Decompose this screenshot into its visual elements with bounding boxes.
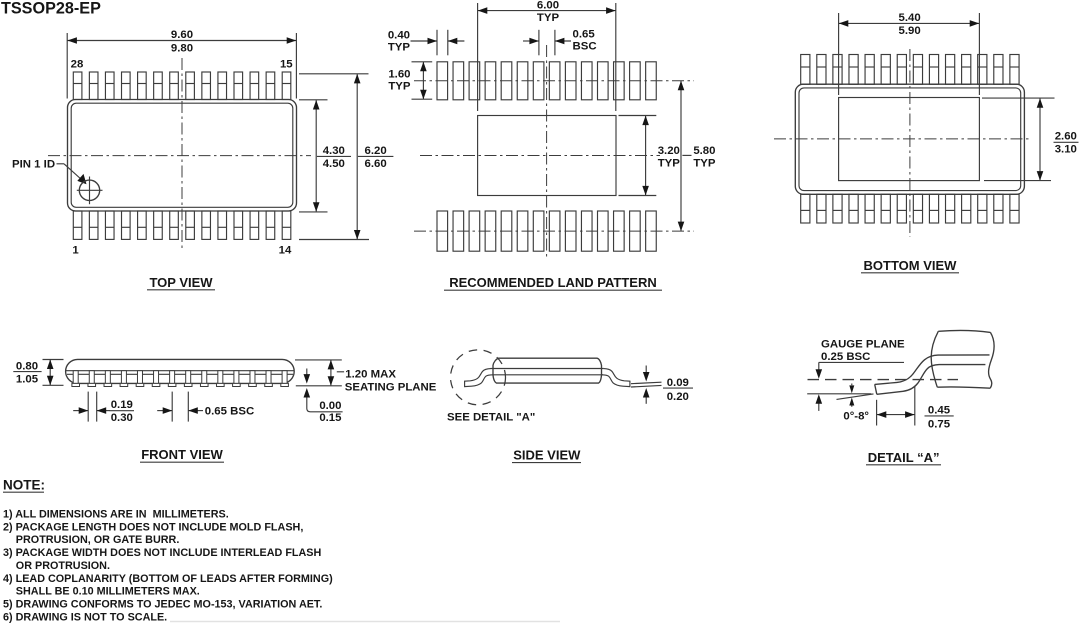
svg-text:0°-8°: 0°-8° xyxy=(843,411,869,423)
svg-text:0.00: 0.00 xyxy=(319,400,341,412)
svg-text:TYP: TYP xyxy=(388,81,411,93)
svg-text:6.60: 6.60 xyxy=(365,158,387,170)
svg-text:NOTE:: NOTE: xyxy=(3,477,45,492)
svg-text:0.40: 0.40 xyxy=(388,30,410,42)
svg-text:1.60: 1.60 xyxy=(388,69,410,81)
svg-text:0.20: 0.20 xyxy=(667,391,689,403)
svg-text:2) PACKAGE LENGTH DOES NOT INC: 2) PACKAGE LENGTH DOES NOT INCLUDE MOLD … xyxy=(3,521,303,533)
svg-text:SEE DETAIL "A": SEE DETAIL "A" xyxy=(447,412,535,424)
svg-text:4) LEAD COPLANARITY (BOTTOM OF: 4) LEAD COPLANARITY (BOTTOM OF LEADS AFT… xyxy=(3,573,333,585)
svg-text:0.09: 0.09 xyxy=(667,377,689,389)
svg-text:5.40: 5.40 xyxy=(899,12,921,24)
svg-text:9.80: 9.80 xyxy=(171,43,193,55)
svg-text:OR PROTRUSION.: OR PROTRUSION. xyxy=(16,560,110,572)
svg-text:BSC: BSC xyxy=(573,41,597,53)
svg-text:0.65: 0.65 xyxy=(573,29,596,41)
svg-text:9.60: 9.60 xyxy=(171,29,193,41)
svg-text:PIN 1 ID: PIN 1 ID xyxy=(12,159,55,171)
svg-text:TYP: TYP xyxy=(537,12,560,24)
svg-text:6.00: 6.00 xyxy=(537,0,559,12)
svg-text:DETAIL “A”: DETAIL “A” xyxy=(868,450,940,465)
svg-text:5.80: 5.80 xyxy=(693,145,715,157)
svg-text:SHALL BE 0.10 MILLIMETERS MAX.: SHALL BE 0.10 MILLIMETERS MAX. xyxy=(16,586,200,598)
svg-text:0.25 BSC: 0.25 BSC xyxy=(821,351,870,363)
svg-text:0.65 BSC: 0.65 BSC xyxy=(205,406,254,418)
svg-text:TYP: TYP xyxy=(658,157,681,169)
svg-text:0.19: 0.19 xyxy=(111,399,133,411)
svg-text:6) DRAWING IS NOT TO SCALE.: 6) DRAWING IS NOT TO SCALE. xyxy=(3,611,167,623)
svg-text:SIDE VIEW: SIDE VIEW xyxy=(513,448,581,463)
svg-text:1.05: 1.05 xyxy=(16,374,39,386)
svg-text:3.10: 3.10 xyxy=(1055,144,1077,156)
svg-text:0.30: 0.30 xyxy=(111,412,133,424)
svg-text:1.20 MAX: 1.20 MAX xyxy=(345,368,396,380)
svg-text:5.90: 5.90 xyxy=(899,25,921,37)
svg-text:0.15: 0.15 xyxy=(319,412,342,424)
svg-text:GAUGE PLANE: GAUGE PLANE xyxy=(821,338,905,350)
svg-text:SEATING PLANE: SEATING PLANE xyxy=(345,382,437,394)
svg-text:1: 1 xyxy=(72,245,79,257)
svg-text:0.75: 0.75 xyxy=(928,419,951,431)
svg-text:5) DRAWING CONFORMS TO JEDEC M: 5) DRAWING CONFORMS TO JEDEC MO-153, VAR… xyxy=(3,599,322,611)
svg-text:BOTTOM VIEW: BOTTOM VIEW xyxy=(864,258,958,273)
svg-text:0.45: 0.45 xyxy=(928,404,951,416)
svg-text:3.20: 3.20 xyxy=(658,145,680,157)
svg-text:15: 15 xyxy=(280,59,293,71)
svg-text:14: 14 xyxy=(279,245,292,257)
svg-text:TYP: TYP xyxy=(693,157,716,169)
svg-text:TYP: TYP xyxy=(388,42,411,54)
svg-text:TOP VIEW: TOP VIEW xyxy=(149,275,213,290)
svg-text:2.60: 2.60 xyxy=(1055,130,1077,142)
svg-text:TSSOP28-EP: TSSOP28-EP xyxy=(1,0,101,18)
svg-text:FRONT VIEW: FRONT VIEW xyxy=(141,447,223,462)
svg-text:4.30: 4.30 xyxy=(323,145,345,157)
svg-text:4.50: 4.50 xyxy=(323,158,345,170)
svg-text:RECOMMENDED LAND PATTERN: RECOMMENDED LAND PATTERN xyxy=(449,275,657,290)
svg-text:28: 28 xyxy=(71,59,84,71)
svg-text:3) PACKAGE WIDTH DOES NOT INCL: 3) PACKAGE WIDTH DOES NOT INCLUDE INTERL… xyxy=(3,547,322,559)
svg-text:0.80: 0.80 xyxy=(16,361,38,373)
svg-text:6.20: 6.20 xyxy=(365,145,387,157)
svg-text:1) ALL DIMENSIONS ARE IN MILL: 1) ALL DIMENSIONS ARE IN MILLIMETERS. xyxy=(3,509,229,521)
svg-text:PROTRUSION, OR GATE BURR.: PROTRUSION, OR GATE BURR. xyxy=(16,534,180,546)
